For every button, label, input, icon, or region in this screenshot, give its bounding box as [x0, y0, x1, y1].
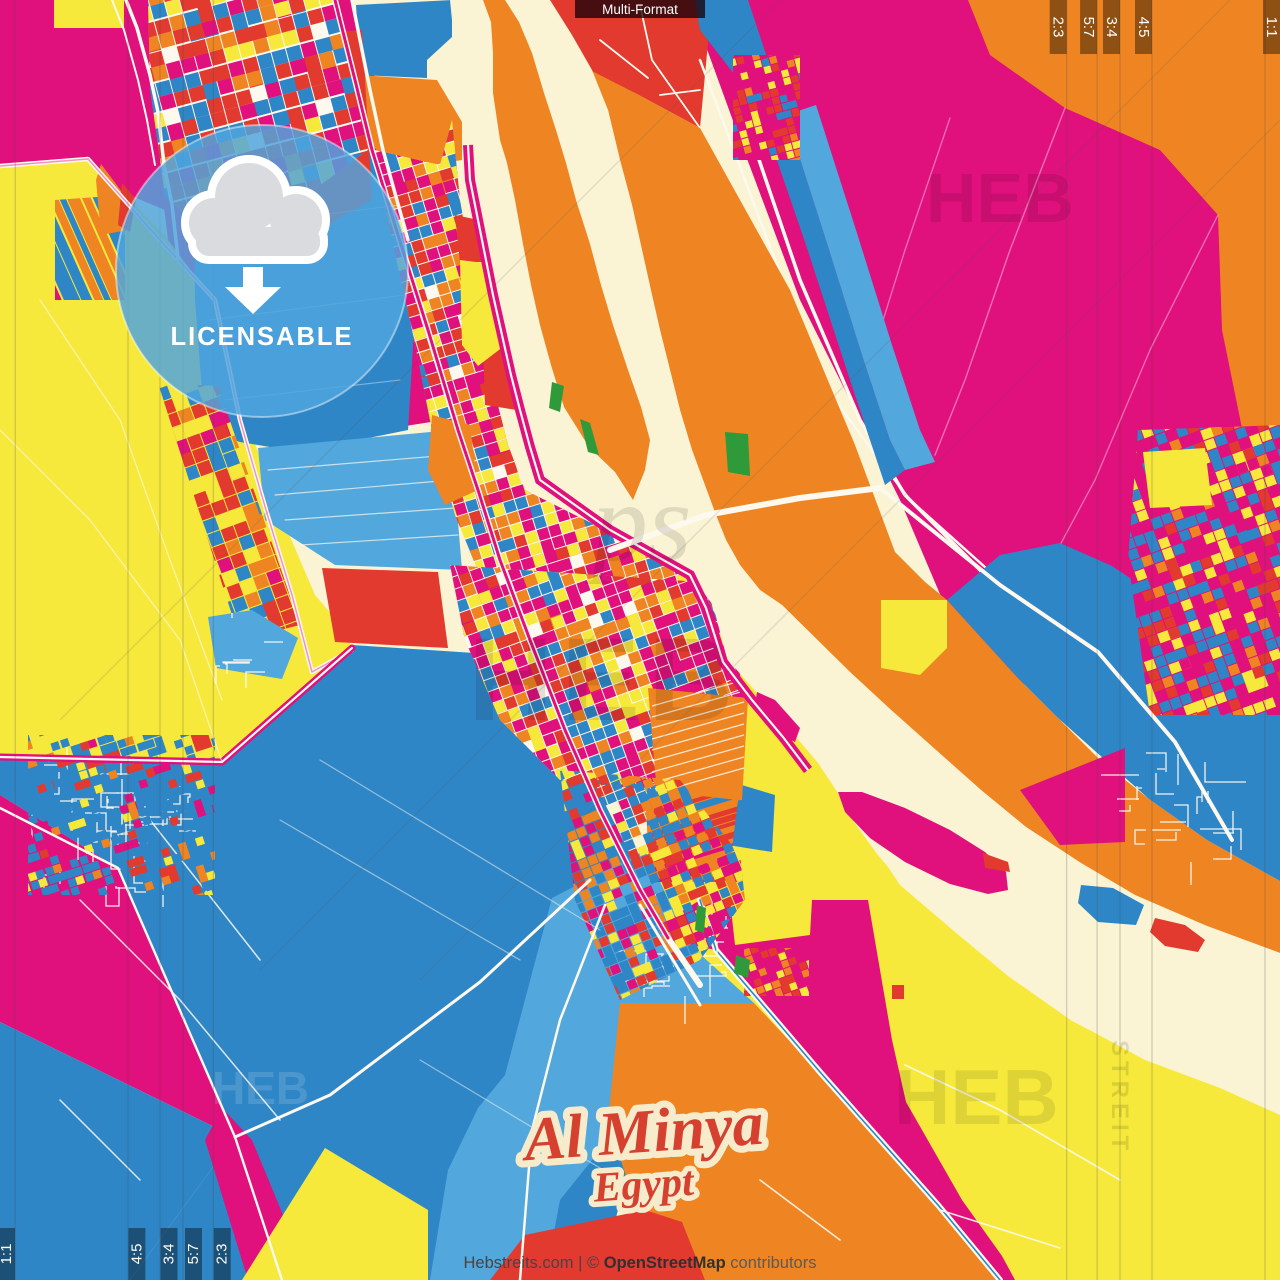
svg-text:ps: ps [585, 461, 692, 585]
svg-text:HEB: HEB [894, 1053, 1059, 1141]
svg-text:LICENSABLE: LICENSABLE [171, 323, 354, 351]
svg-text:2:3: 2:3 [214, 1244, 231, 1265]
svg-text:1:1: 1:1 [0, 1244, 15, 1265]
svg-text:Egypt: Egypt [591, 1159, 697, 1212]
svg-text:HEB: HEB [212, 1062, 309, 1114]
svg-text:HEB: HEB [468, 614, 741, 746]
svg-text:HEB: HEB [926, 159, 1074, 237]
svg-text:5:7: 5:7 [1080, 17, 1097, 38]
svg-text:4:5: 4:5 [1135, 17, 1152, 38]
svg-text:3:4: 3:4 [1103, 17, 1120, 38]
svg-text:5:7: 5:7 [185, 1244, 202, 1265]
svg-text:2:3: 2:3 [1050, 17, 1067, 38]
svg-text:Hebstreits.com | © OpenStreetM: Hebstreits.com | © OpenStreetMap contrib… [464, 1254, 817, 1272]
svg-text:Multi-Format: Multi-Format [602, 2, 678, 17]
svg-text:1:1: 1:1 [1263, 17, 1280, 38]
svg-text:4:5: 4:5 [128, 1244, 145, 1265]
svg-text:3:4: 3:4 [161, 1244, 178, 1265]
